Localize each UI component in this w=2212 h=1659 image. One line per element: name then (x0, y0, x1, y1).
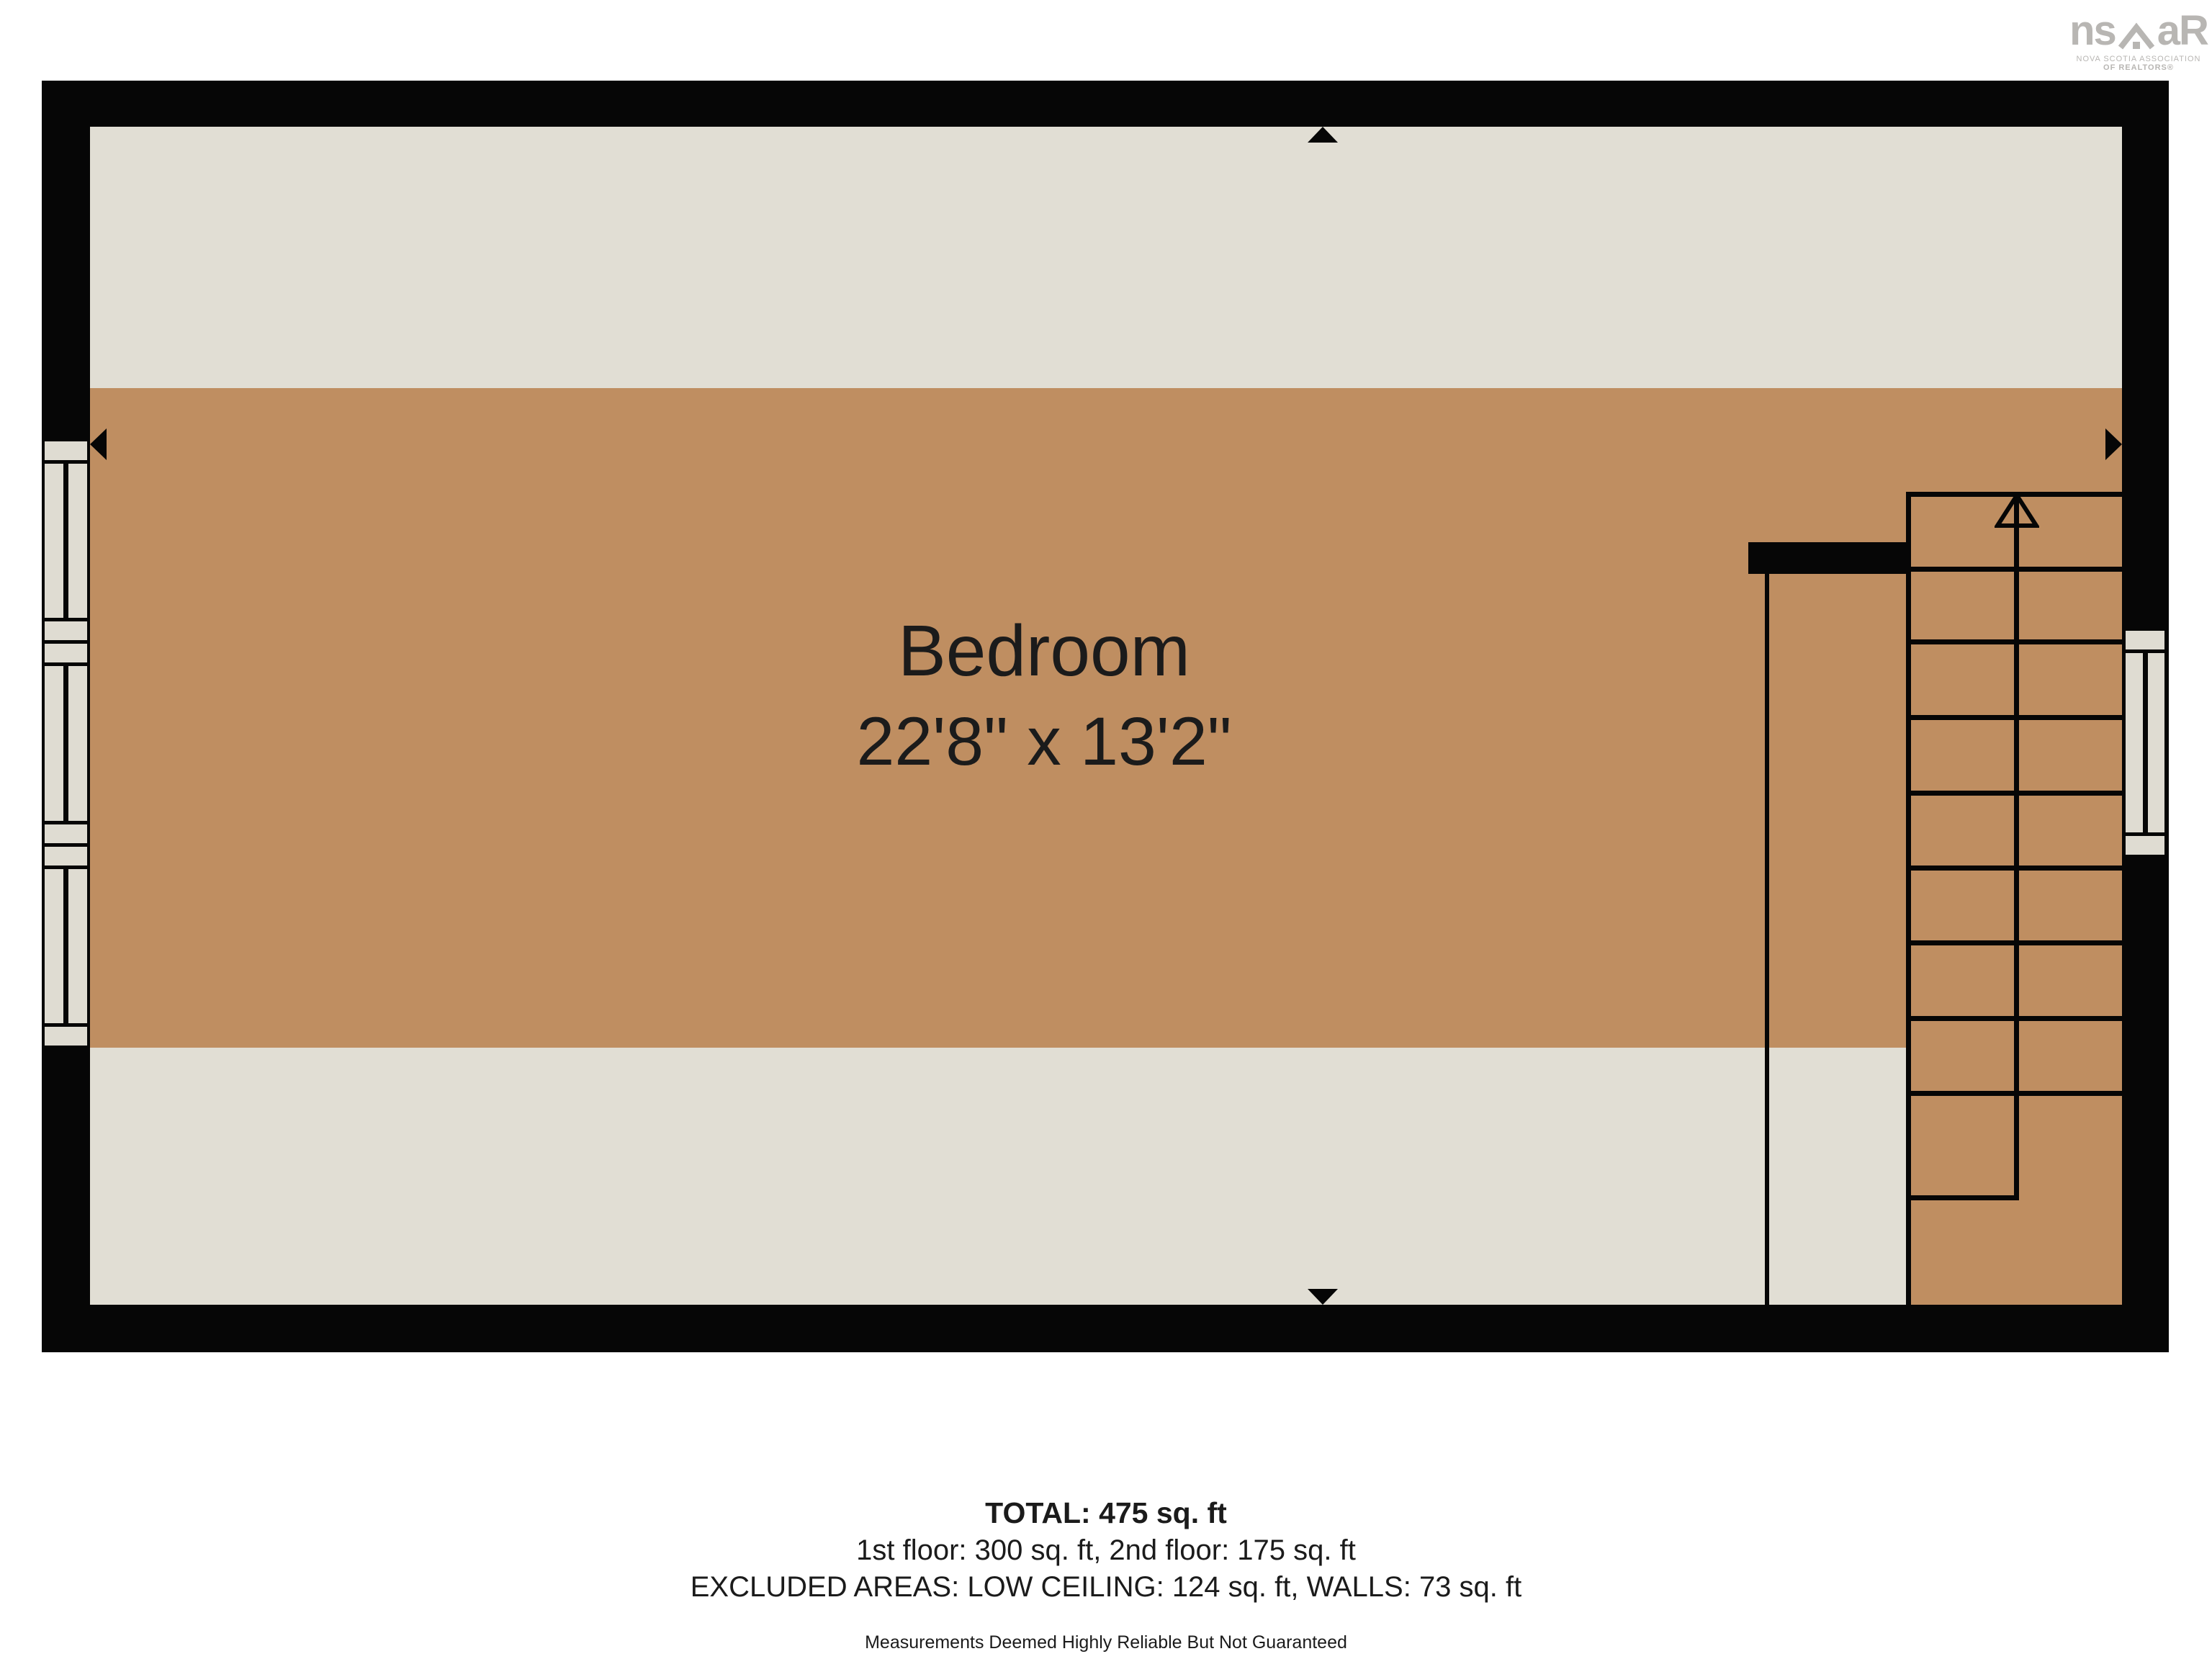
measurement-summary: TOTAL: 475 sq. ft 1st floor: 300 sq. ft,… (0, 1496, 2212, 1653)
logo-tagline-line1: NOVA SCOTIA ASSOCIATION (2068, 55, 2209, 63)
window-panes (2126, 653, 2164, 832)
window-mullion (2143, 653, 2148, 832)
room-name: Bedroom (684, 613, 1404, 689)
stairwell-railing (1765, 574, 1769, 1305)
window-pane (68, 464, 87, 618)
stairs-direction-line (2014, 492, 2019, 1200)
logo-text-right: aR (2157, 10, 2208, 52)
window-sill (45, 824, 87, 843)
window (45, 644, 87, 842)
window (45, 847, 87, 1046)
window-sill (45, 847, 87, 866)
window-mullion (63, 869, 68, 1023)
stairs-up-arrow-icon (1995, 493, 2039, 528)
window-pane (45, 464, 63, 618)
window-sill (45, 621, 87, 640)
total-area-text: TOTAL: 475 sq. ft (0, 1496, 2212, 1530)
window-panes (45, 464, 87, 618)
section-arrow-up-icon (1308, 127, 1338, 143)
nsar-logo-wordmark: ns aR (2068, 10, 2209, 52)
window (2126, 631, 2164, 855)
window-sill (2126, 836, 2164, 855)
floor-areas-text: 1st floor: 300 sq. ft, 2nd floor: 175 sq… (0, 1534, 2212, 1567)
stairs-bottom-step-edge (1906, 1195, 2019, 1200)
floor-plan-interior: Bedroom 22'8" x 13'2" (90, 127, 2122, 1305)
excluded-areas-text: EXCLUDED AREAS: LOW CEILING: 124 sq. ft,… (0, 1570, 2212, 1604)
section-arrow-right-icon (2105, 428, 2122, 460)
window-mullion (63, 464, 68, 618)
window-mullion (63, 666, 68, 820)
floor-plan-page: ns aR NOVA SCOTIA ASSOCIATION OF REALTOR… (0, 0, 2212, 1659)
stairwell-half-wall (1748, 542, 1910, 574)
left-wall-window-assembly (42, 439, 90, 1048)
right-wall-window-assembly (2123, 629, 2167, 857)
window-panes (45, 869, 87, 1023)
window-pane (45, 666, 63, 820)
room-dimensions: 22'8" x 13'2" (684, 706, 1404, 778)
logo-text-left: ns (2069, 10, 2116, 52)
room-label-block: Bedroom 22'8" x 13'2" (684, 613, 1404, 778)
window (45, 441, 87, 640)
window-pane (45, 869, 63, 1023)
section-arrow-down-icon (1308, 1289, 1338, 1305)
window-sill (2126, 631, 2164, 649)
window-pane (68, 666, 87, 820)
window-sill (45, 441, 87, 460)
floor-plan-outer-wall: Bedroom 22'8" x 13'2" (42, 81, 2169, 1352)
window-sill (45, 1027, 87, 1046)
disclaimer-text: Measurements Deemed Highly Reliable But … (0, 1632, 2212, 1653)
window-pane (2126, 653, 2143, 832)
window-panes (45, 666, 87, 820)
nsar-logo: ns aR NOVA SCOTIA ASSOCIATION OF REALTOR… (2068, 10, 2209, 72)
section-arrow-left-icon (90, 428, 107, 460)
stairs-left-edge (1906, 492, 1911, 1305)
window-pane (2148, 653, 2165, 832)
house-roof-icon (2118, 22, 2155, 50)
window-pane (68, 869, 87, 1023)
logo-tagline-line2: OF REALTORS® (2068, 63, 2209, 72)
window-sill (45, 644, 87, 662)
